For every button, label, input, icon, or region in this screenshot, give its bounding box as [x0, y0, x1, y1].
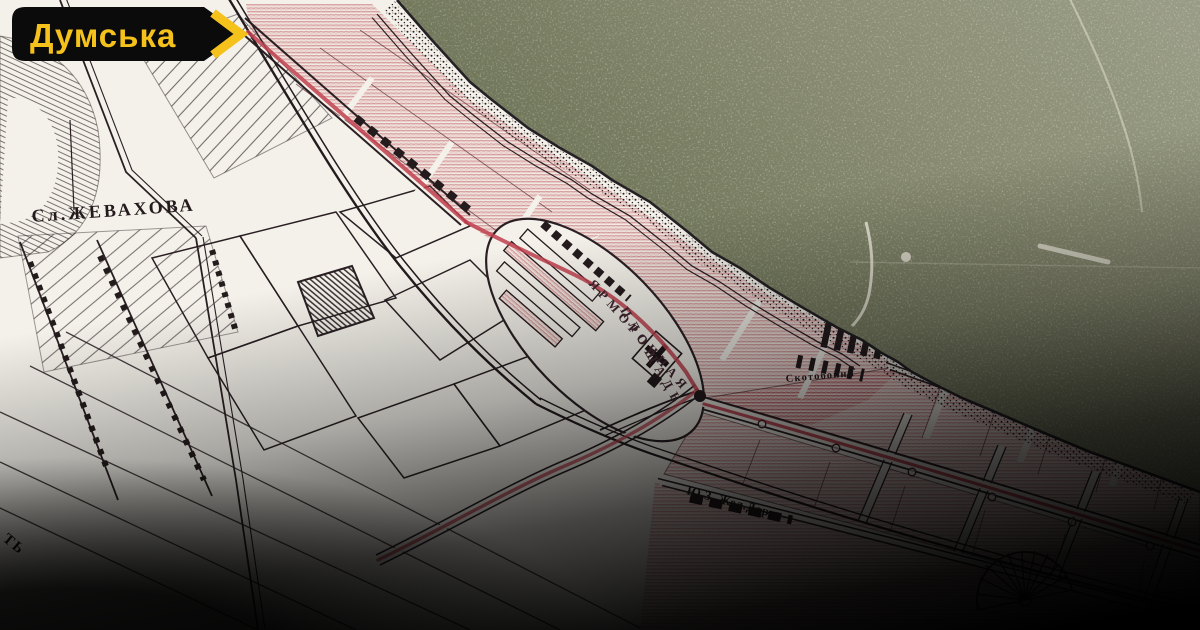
- dumska-logo-badge: Думська: [8, 5, 258, 63]
- scan-spot: [901, 252, 911, 262]
- social-card: Сл.ЖЕВАХОВА ЯРМОРОЧНАЯ ПЛОЩАДЬ Ю.З. Жел.…: [0, 0, 1200, 630]
- route-junction-knot: [694, 390, 706, 402]
- badge-label: Думська: [30, 17, 176, 54]
- historical-city-map: Сл.ЖЕВАХОВА ЯРМОРОЧНАЯ ПЛОЩАДЬ Ю.З. Жел.…: [0, 0, 1200, 630]
